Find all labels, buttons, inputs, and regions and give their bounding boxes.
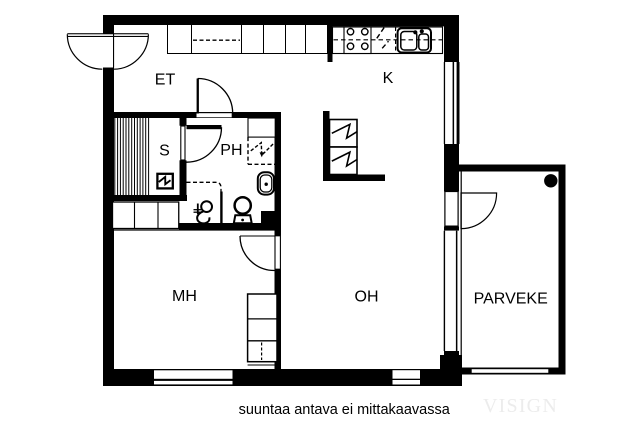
svg-text:PARVEKE: PARVEKE [474, 290, 548, 307]
svg-text:MH: MH [172, 288, 197, 305]
svg-text:PH: PH [220, 142, 242, 159]
svg-text:OH: OH [355, 289, 379, 306]
svg-text:VISIGN: VISIGN [483, 395, 558, 417]
svg-text:suuntaa antava ei mittakaavass: suuntaa antava ei mittakaavassa [239, 402, 451, 418]
svg-text:K: K [383, 70, 394, 87]
svg-text:ET: ET [155, 71, 176, 88]
svg-text:S: S [159, 142, 170, 159]
